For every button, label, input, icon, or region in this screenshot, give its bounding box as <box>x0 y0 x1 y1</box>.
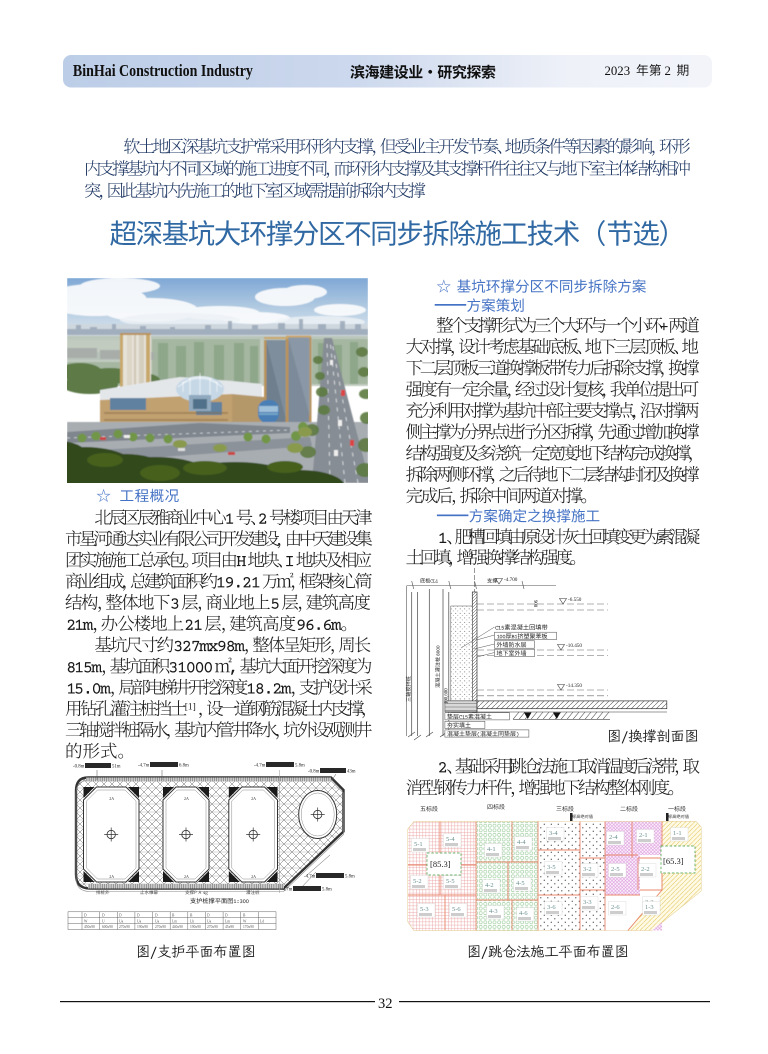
svg-text:[1]: [1] <box>185 702 196 712</box>
svg-text:6.8m: 6.8m <box>179 764 189 769</box>
svg-text:2-6: 2-6 <box>611 904 620 911</box>
svg-text:2A: 2A <box>184 874 189 879</box>
svg-text:4-2: 4-2 <box>485 882 494 889</box>
svg-text:BinHai Construction Industry: BinHai Construction Industry <box>73 61 253 80</box>
svg-text:45x90: 45x90 <box>225 925 234 929</box>
svg-text:D: D <box>102 913 105 917</box>
svg-text:-4.700: -4.700 <box>504 577 518 583</box>
svg-text:D: D <box>119 913 122 917</box>
svg-text:3-2: 3-2 <box>583 866 592 873</box>
svg-text:-4.7m: -4.7m <box>254 764 266 769</box>
svg-text:2-2: 2-2 <box>641 866 650 873</box>
svg-text:[65.3]: [65.3] <box>663 856 684 866</box>
svg-text:450x90: 450x90 <box>84 925 95 929</box>
svg-text:W: W <box>84 919 88 923</box>
svg-text:5-2: 5-2 <box>413 878 422 885</box>
svg-text:2A: 2A <box>184 796 189 801</box>
svg-text:2-1: 2-1 <box>639 832 648 839</box>
svg-text:3-6: 3-6 <box>547 904 556 911</box>
svg-text:5.8m: 5.8m <box>322 888 332 893</box>
svg-text:Lh: Lh <box>190 919 194 923</box>
svg-text:-14.350: -14.350 <box>566 683 582 689</box>
svg-text:U: U <box>102 919 105 923</box>
svg-text:2A: 2A <box>251 796 256 801</box>
svg-text:43m: 43m <box>347 770 356 775</box>
svg-text:Ld: Ld <box>260 919 264 923</box>
svg-text:270x90: 270x90 <box>119 925 130 929</box>
svg-text:1-1: 1-1 <box>673 830 682 837</box>
svg-text:4-3: 4-3 <box>489 908 498 915</box>
svg-text:5-4: 5-4 <box>446 836 455 843</box>
svg-text:5-5: 5-5 <box>446 878 455 885</box>
svg-text:3-5: 3-5 <box>547 864 556 871</box>
svg-text:3-3: 3-3 <box>583 899 592 906</box>
svg-text:5.8m: 5.8m <box>295 764 305 769</box>
svg-text:-4.7m: -4.7m <box>304 875 316 880</box>
svg-text:-6.550: -6.550 <box>568 597 582 603</box>
svg-text:170x90: 170x90 <box>243 925 254 929</box>
svg-text:Ua: Ua <box>207 919 212 923</box>
svg-text:Lm: Lm <box>225 919 230 923</box>
svg-text:2-4: 2-4 <box>609 834 618 841</box>
svg-text:4-1: 4-1 <box>487 846 496 853</box>
svg-text:190x90: 190x90 <box>137 925 148 929</box>
svg-text:2A: 2A <box>109 874 114 879</box>
svg-text:2023: 2023 <box>605 64 631 78</box>
svg-text:W: W <box>243 919 247 923</box>
svg-text:2A: 2A <box>251 874 256 879</box>
svg-text:5.8m: 5.8m <box>345 875 355 880</box>
svg-text:4-6: 4-6 <box>519 910 528 917</box>
svg-text:32: 32 <box>378 996 393 1012</box>
svg-text:270x90: 270x90 <box>207 925 218 929</box>
svg-text:D: D <box>207 913 210 917</box>
svg-text:2A: 2A <box>109 796 114 801</box>
svg-text:2-5: 2-5 <box>611 866 620 873</box>
svg-text:440x90: 440x90 <box>172 925 183 929</box>
svg-text:D: D <box>225 913 228 917</box>
svg-text:190x90: 190x90 <box>190 925 201 929</box>
svg-text:270x90: 270x90 <box>155 925 166 929</box>
svg-text:-0.8m: -0.8m <box>308 770 320 775</box>
svg-text:D: D <box>137 913 140 917</box>
svg-text:51m: 51m <box>112 765 121 770</box>
svg-text:-4.7m: -4.7m <box>138 764 150 769</box>
svg-text:D: D <box>84 913 87 917</box>
svg-text:-0.8m: -0.8m <box>73 765 85 770</box>
svg-text:4-5: 4-5 <box>516 880 525 887</box>
svg-text:Lm: Lm <box>172 919 177 923</box>
svg-text:600x90: 600x90 <box>102 925 113 929</box>
svg-text:Ua: Ua <box>155 919 160 923</box>
svg-text:3-4: 3-4 <box>549 830 558 837</box>
svg-text:Ua: Ua <box>137 919 142 923</box>
svg-text:D: D <box>155 913 158 917</box>
svg-text:900: 900 <box>532 600 537 608</box>
svg-text:[85.3]: [85.3] <box>430 859 451 869</box>
svg-text:-10.450: -10.450 <box>566 643 582 649</box>
svg-text:4-4: 4-4 <box>517 839 526 846</box>
svg-text:5-3: 5-3 <box>420 906 429 913</box>
svg-text:5-6: 5-6 <box>452 906 461 913</box>
svg-text:2: 2 <box>665 64 671 78</box>
svg-text:5-1: 5-1 <box>414 841 423 848</box>
svg-text:-4.7m: -4.7m <box>281 888 293 893</box>
svg-text:Ua: Ua <box>119 919 124 923</box>
svg-text:1-3: 1-3 <box>645 904 654 911</box>
svg-text:100,600: 100,600 <box>445 688 450 704</box>
